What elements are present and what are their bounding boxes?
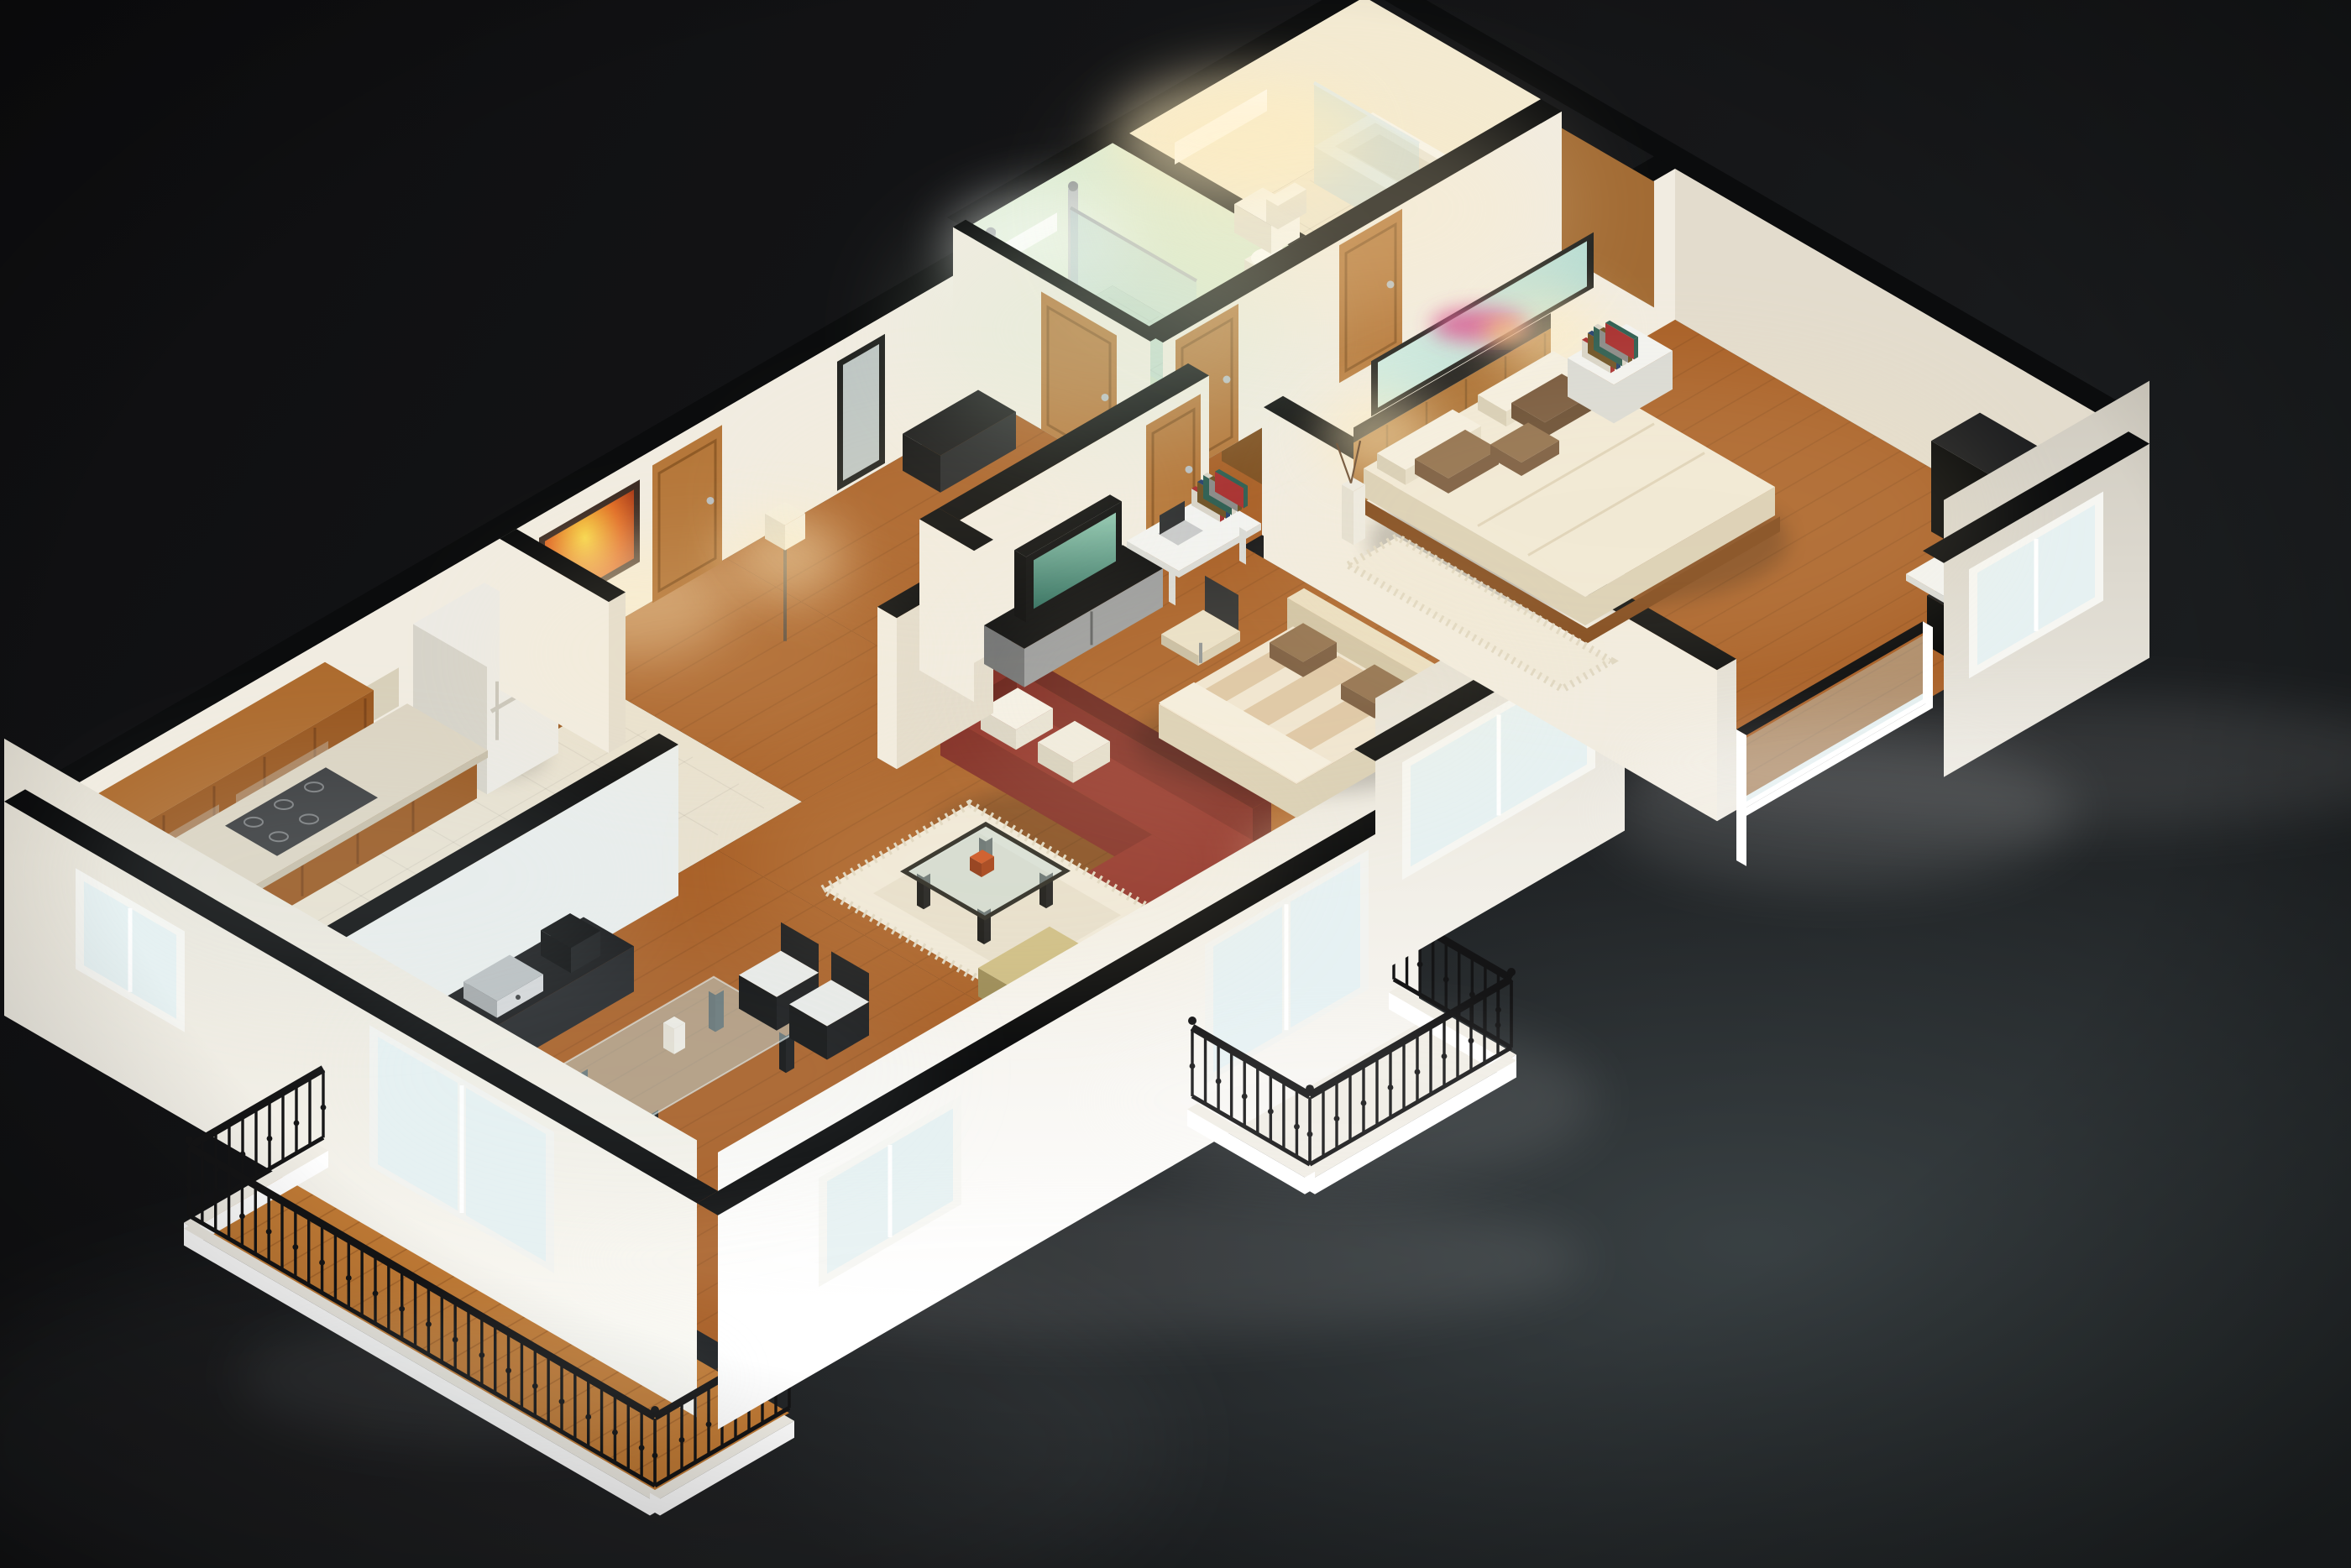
- vignette: [0, 0, 2351, 1568]
- floorplan-render-canvas: 3D cutaway floor-plan render of an apart…: [0, 0, 2351, 1568]
- render-stage: 3D cutaway floor-plan render of an apart…: [0, 0, 2351, 1568]
